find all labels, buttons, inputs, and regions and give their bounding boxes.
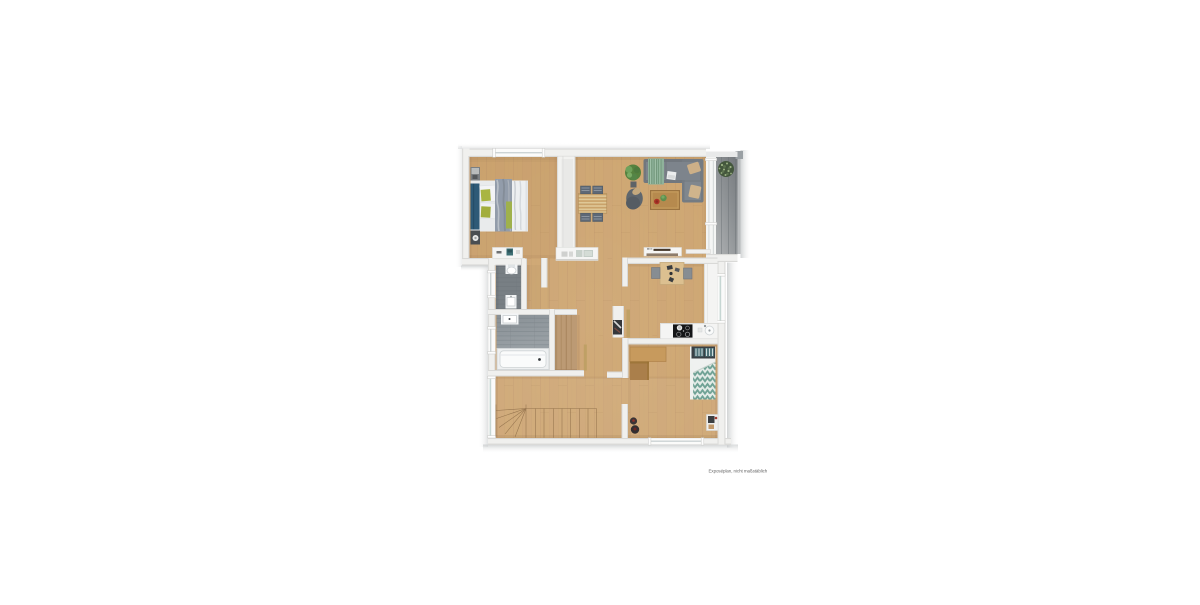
svg-text:Exposéplan, nicht maßstäblich: Exposéplan, nicht maßstäblich [709, 469, 768, 474]
